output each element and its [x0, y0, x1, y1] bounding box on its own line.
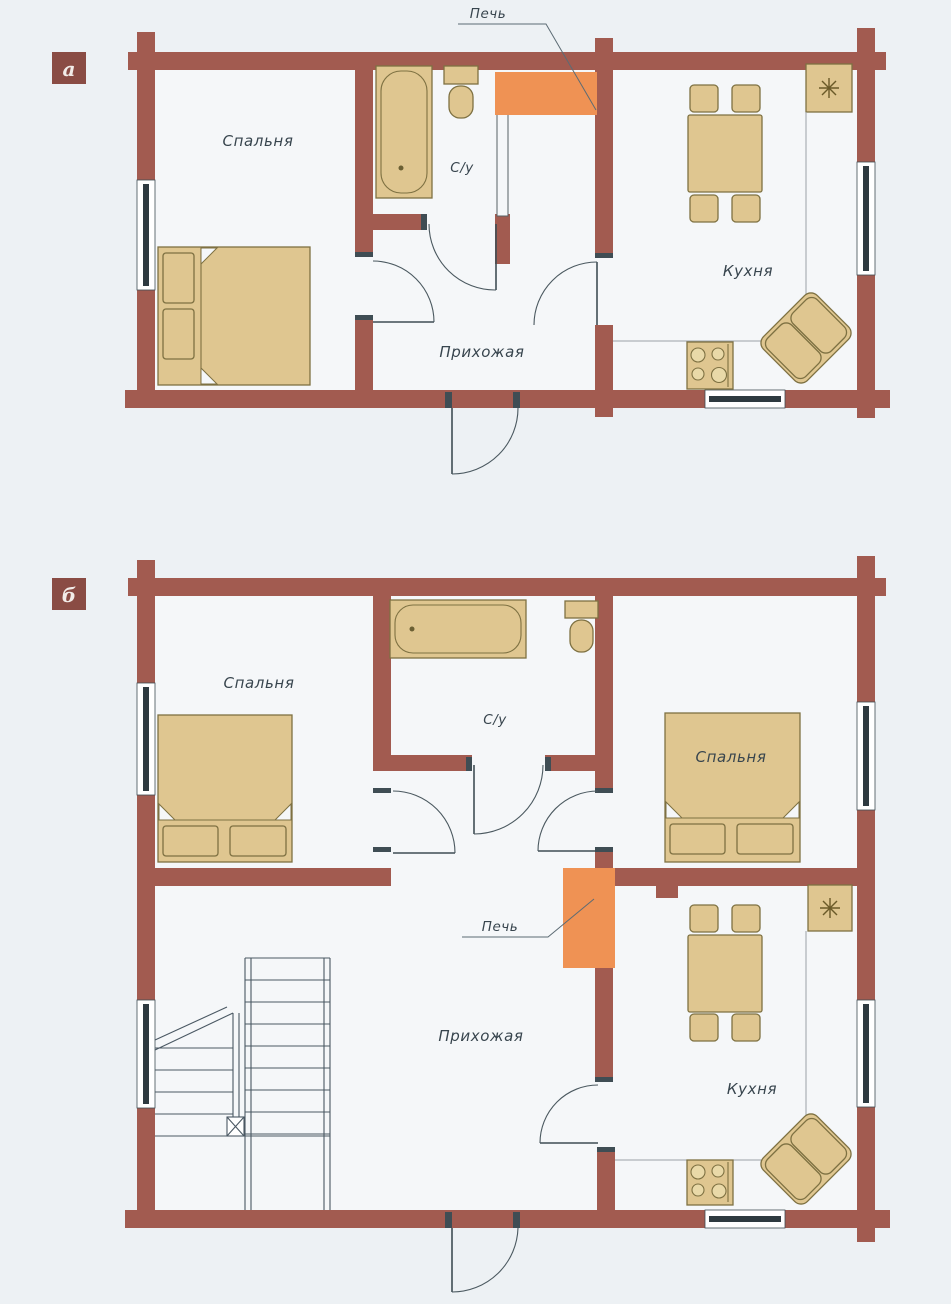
wall-cap — [466, 757, 472, 771]
cooktop — [687, 1160, 733, 1205]
pillow — [670, 824, 725, 854]
stove-callout-label: Печь — [482, 919, 518, 935]
sink-unit — [806, 64, 852, 112]
wall-cap — [597, 1147, 615, 1152]
toilet-bowl — [570, 620, 593, 652]
toilet-tank — [444, 66, 478, 84]
partition-bathroom-right — [497, 113, 508, 216]
window-stairs-left — [137, 1000, 155, 1108]
room-label-hallway: Прихожая — [438, 1027, 523, 1045]
table — [688, 935, 762, 1012]
wall-bathroom-bottom-left — [373, 755, 472, 771]
wall-bathroom-left — [373, 596, 391, 770]
plan-marker: б — [62, 583, 76, 607]
wall-cap — [595, 1077, 613, 1082]
window-kitchen-bottom — [705, 390, 785, 408]
chair — [690, 905, 718, 932]
wall-bathroom-stub — [495, 214, 510, 264]
room-label-bedroom-left: Спальня — [224, 674, 295, 692]
wall-cap — [545, 757, 551, 771]
room-label-kitchen: Кухня — [723, 262, 773, 280]
sink-icon — [820, 898, 840, 918]
chair — [732, 1014, 760, 1041]
wall-bedroom-right-bottom — [613, 868, 857, 886]
plan-a: а Спальня С/у Кухня Прихожая Печь — [52, 6, 890, 474]
sink-unit — [808, 885, 852, 931]
wall-cap — [373, 847, 391, 852]
window-kitchen-right — [857, 162, 875, 275]
wall-top — [128, 578, 886, 596]
chair — [690, 85, 718, 112]
door-entry — [452, 1228, 518, 1292]
toilet-tank — [565, 601, 598, 618]
door-jamb — [513, 392, 520, 408]
double-bed-left — [158, 715, 292, 862]
pillow — [163, 253, 194, 303]
bathtub — [376, 66, 432, 198]
window-bedroom-left — [137, 180, 155, 290]
double-bed — [158, 247, 310, 385]
chair — [690, 1014, 718, 1041]
room-label-bathroom: С/у — [450, 160, 474, 176]
wall-kitchen-upper — [595, 38, 613, 258]
room-label-bathroom: С/у — [483, 712, 507, 728]
window-kitchen-bottom — [705, 1210, 785, 1228]
pillow — [737, 824, 793, 854]
drain — [410, 627, 415, 632]
drain — [399, 166, 404, 171]
chair — [732, 905, 760, 932]
masonry-stove — [495, 72, 597, 115]
wall-bathroom-bottom — [355, 214, 427, 230]
wall-cap — [373, 788, 391, 793]
wall-center-upper — [595, 596, 613, 793]
room-label-hallway: Прихожая — [439, 343, 524, 361]
page: а Спальня С/у Кухня Прихожая Печь — [0, 0, 951, 1304]
pillow — [230, 826, 286, 856]
bathtub — [390, 600, 526, 658]
chair — [732, 85, 760, 112]
wall-top — [128, 52, 886, 70]
room-label-bedroom: Спальня — [223, 132, 294, 150]
plan-b: б Спальня С/у Спальня Прихожая Кухня Печ… — [52, 556, 890, 1292]
door-entry — [452, 408, 518, 474]
pillow — [163, 309, 194, 359]
chair — [732, 195, 760, 222]
plan-marker: а — [63, 57, 76, 81]
table — [688, 115, 762, 192]
wall-kitchen-entry — [597, 1147, 615, 1210]
pillow — [163, 826, 218, 856]
wall-bedroom-left-bottom — [137, 868, 391, 886]
toilet-bowl — [449, 86, 473, 118]
stove-callout-label: Печь — [470, 6, 506, 22]
wall-left — [137, 560, 155, 1220]
door-jamb — [445, 392, 452, 408]
wall-right — [857, 556, 875, 1242]
chair — [690, 195, 718, 222]
room-label-bedroom-right: Спальня — [696, 748, 767, 766]
room-label-kitchen: Кухня — [727, 1080, 777, 1098]
wall-cap — [355, 252, 373, 257]
wall-stub — [656, 886, 678, 898]
double-bed-right — [665, 713, 800, 862]
wall-cap — [421, 214, 427, 230]
wall-center-lower — [595, 968, 613, 1082]
window-bedroom-right — [857, 702, 875, 810]
cooktop — [687, 342, 733, 389]
window-bedroom-left — [137, 683, 155, 795]
door-jamb — [513, 1212, 520, 1228]
door-jamb — [445, 1212, 452, 1228]
wall-kitchen-lower — [595, 325, 613, 417]
wall-bedroom-lower — [355, 320, 373, 390]
window-kitchen-right — [857, 1000, 875, 1107]
sink-icon — [819, 78, 839, 98]
wall-cap — [595, 253, 613, 258]
floor-plans-figure: а Спальня С/у Кухня Прихожая Печь — [0, 0, 951, 1304]
wall-cap — [355, 315, 373, 320]
